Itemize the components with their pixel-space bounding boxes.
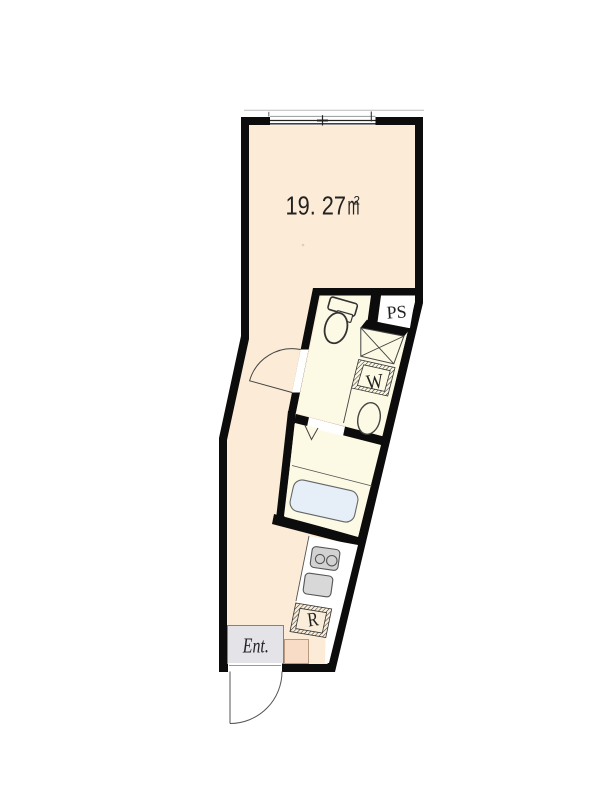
svg-text:Ent.: Ent. [242, 634, 269, 658]
svg-text:2: 2 [354, 195, 361, 207]
svg-text:19. 27: 19. 27 [286, 191, 347, 221]
svg-text:W: W [365, 369, 385, 395]
svg-text:PS: PS [386, 301, 407, 322]
